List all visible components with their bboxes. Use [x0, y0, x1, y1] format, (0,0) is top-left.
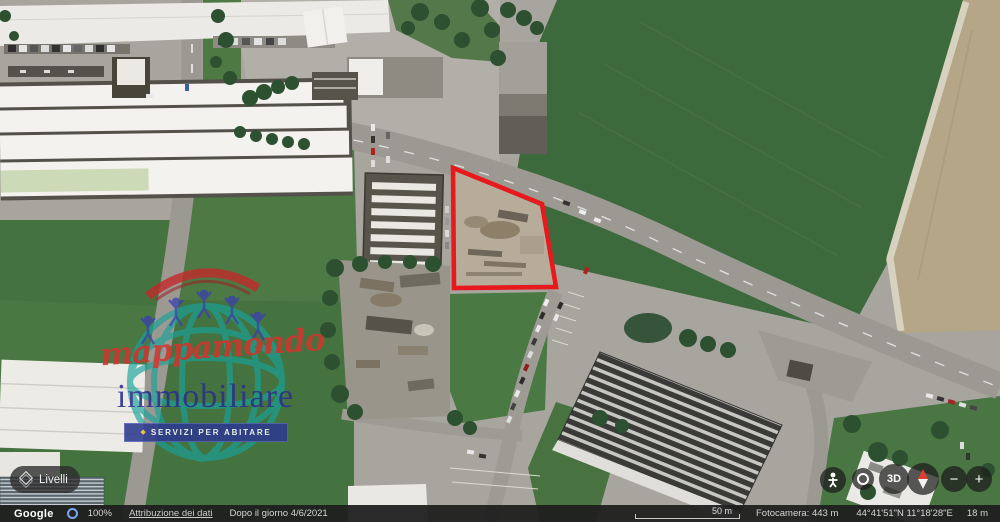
- scrapyard: [338, 260, 450, 420]
- compass-button[interactable]: [907, 463, 939, 495]
- compass-needle-south: [918, 479, 928, 489]
- coordinates: 44°41'51"N 11°18'28"E: [856, 508, 953, 519]
- scale-bar: 50 m: [635, 508, 740, 520]
- layers-diamond-icon: [19, 473, 32, 486]
- google-logo: Google: [14, 508, 54, 520]
- view-3d-button[interactable]: 3D: [879, 464, 909, 494]
- zoom-out-button[interactable]: −: [941, 466, 967, 492]
- elevation: 18 m: [967, 508, 988, 519]
- my-location-button[interactable]: [852, 468, 874, 490]
- crosshair-icon: [857, 473, 869, 485]
- pegman-button[interactable]: [820, 467, 846, 493]
- imagery-date: Dopo il giorno 4/6/2021: [229, 508, 327, 519]
- camera-altitude: Fotocamera: 443 m: [756, 508, 838, 519]
- google-earth-window: mappamondo immobiliare ◆ SERVIZI PER ABI…: [0, 0, 1000, 522]
- zoom-out-label: −: [950, 471, 959, 488]
- layers-label: Livelli: [39, 474, 68, 486]
- layers-button[interactable]: Livelli: [10, 466, 80, 493]
- zoom-in-label: +: [975, 471, 984, 488]
- loading-ring-icon: [67, 508, 78, 519]
- zoom-in-button[interactable]: +: [966, 466, 992, 492]
- satellite-map[interactable]: [0, 0, 1000, 522]
- attribution-link[interactable]: Attribuzione dei dati: [129, 508, 212, 519]
- status-bar: Google 100% Attribuzione dei dati Dopo i…: [0, 505, 1000, 522]
- pegman-icon: [827, 472, 839, 488]
- view-3d-label: 3D: [887, 473, 901, 485]
- zoom-percent: 100%: [88, 508, 112, 519]
- scale-label: 50 m: [712, 506, 732, 516]
- compass-needle-icon: [918, 469, 928, 479]
